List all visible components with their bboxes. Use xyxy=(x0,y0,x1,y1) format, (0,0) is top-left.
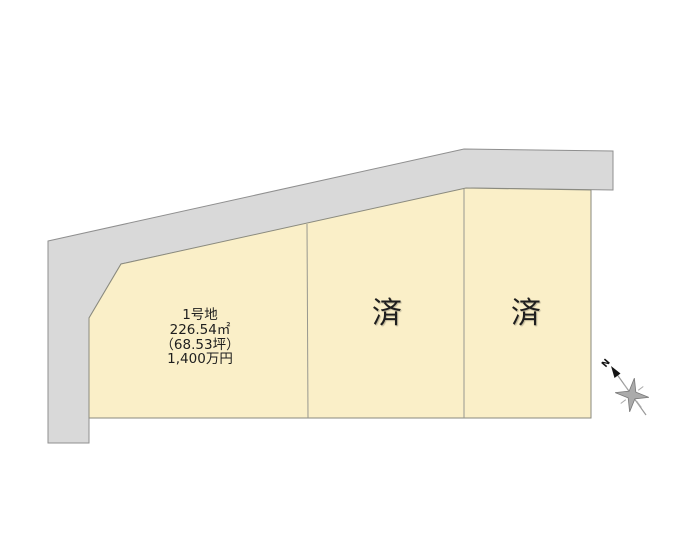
north-arrowhead-icon xyxy=(611,366,621,378)
lot-2-sold-status: 済 xyxy=(372,296,402,331)
compass: N xyxy=(600,358,651,415)
compass-tick-ne xyxy=(638,386,643,391)
compass-star-group xyxy=(613,376,651,414)
compass-star-icon xyxy=(613,376,651,414)
lot-map-page: 1号地 226.54㎡ （68.53坪） 1,400万円 済 済 N xyxy=(0,0,686,551)
lot-1-area-sqm: 226.54㎡ xyxy=(170,322,231,338)
compass-tick-sw xyxy=(621,399,626,404)
lot-1-name: 1号地 xyxy=(182,307,218,323)
lot-map-drawing: 1号地 226.54㎡ （68.53坪） 1,400万円 済 済 N xyxy=(0,0,686,551)
lot-3-sold-status: 済 xyxy=(511,296,541,331)
compass-tick-se xyxy=(636,401,642,407)
lot-1-price: 1,400万円 xyxy=(167,351,233,367)
compass-tick-nw xyxy=(623,384,628,389)
north-label: N xyxy=(600,358,613,370)
